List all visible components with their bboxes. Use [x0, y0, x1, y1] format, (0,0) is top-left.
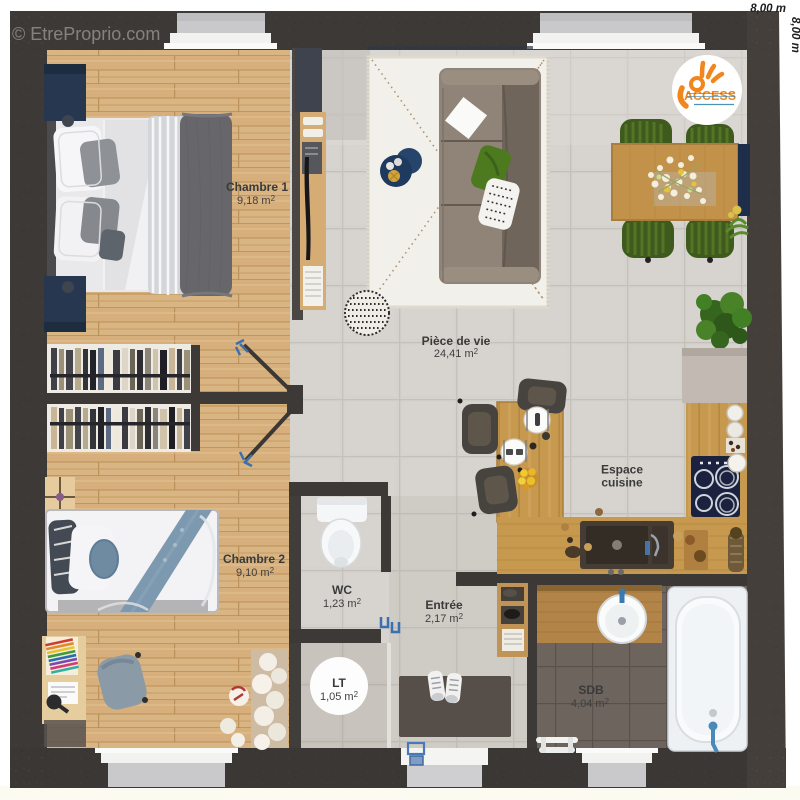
svg-text:4,04 m2: 4,04 m2 — [571, 697, 610, 710]
svg-text:© EtreProprio.com: © EtreProprio.com — [12, 24, 160, 44]
svg-text:8,00 m: 8,00 m — [750, 3, 786, 15]
svg-text:2,17 m2: 2,17 m2 — [425, 612, 464, 625]
svg-text:Entrée: Entrée — [425, 598, 463, 612]
svg-text:Chambre 1: Chambre 1 — [226, 180, 288, 194]
svg-text:Chambre 2: Chambre 2 — [223, 552, 285, 566]
svg-text:Pièce de vie: Pièce de vie — [422, 334, 491, 348]
svg-text:1,23 m2: 1,23 m2 — [323, 597, 362, 610]
svg-text:cuisine: cuisine — [601, 476, 643, 490]
svg-text:9,10 m2: 9,10 m2 — [236, 566, 275, 579]
svg-text:8,00 m: 8,00 m — [789, 17, 800, 53]
svg-text:ACCESS: ACCESS — [684, 89, 736, 103]
svg-text:24,41 m2: 24,41 m2 — [434, 347, 479, 360]
svg-text:SDB: SDB — [578, 683, 604, 697]
svg-text:1,05 m2: 1,05 m2 — [320, 690, 359, 703]
svg-text:Espace: Espace — [601, 463, 643, 477]
svg-text:WC: WC — [332, 583, 352, 597]
svg-text:LT: LT — [332, 676, 346, 690]
svg-text:9,18 m2: 9,18 m2 — [237, 194, 276, 207]
